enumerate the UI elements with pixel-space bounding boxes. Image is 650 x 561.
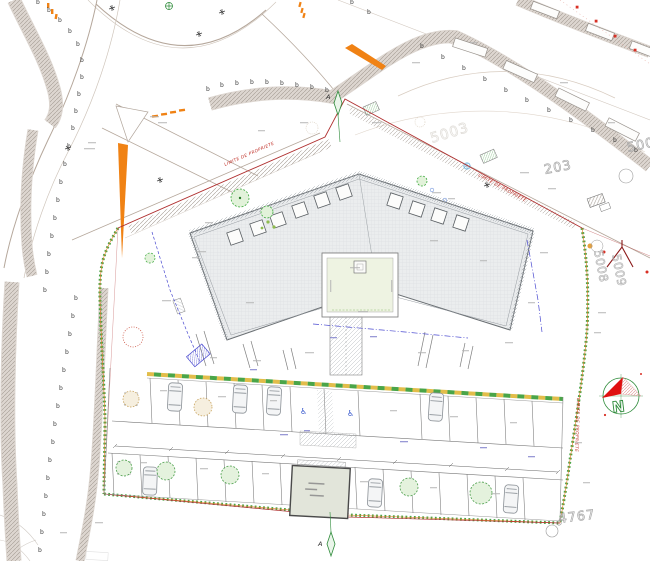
tree [194,398,212,416]
parcel-number-5009: 5009 [609,253,629,288]
parcel-number-203: 203 [543,158,573,178]
parcel-number-5008: 5008 [591,249,611,284]
tree [123,391,139,407]
utility-building [290,460,351,519]
tree [261,206,273,218]
tree [470,482,492,504]
tree [417,176,427,186]
roundabout-marker [165,2,173,10]
tree [221,466,239,484]
parcel-numbers: 203 5003 5003 5008 5009 4767 [428,120,650,527]
car [232,385,247,414]
crosswalk [300,431,356,448]
site-plan-drawing: b [0,0,650,561]
section-marker-bottom [327,532,335,556]
wheelchair-icon: ♿ [300,407,307,416]
section-label: A [317,540,322,548]
north-letter: N [611,397,626,416]
property-line-label: LIMITE DE PROPRIETE [573,398,581,452]
tree [157,462,175,480]
access-ramp [186,344,210,367]
property-line-label: LIMITE DE PROPRIETE [477,172,527,203]
tree [123,327,143,347]
courtyard [322,253,398,317]
car [167,383,182,412]
section-label: A [325,93,330,101]
parcel-number-4767: 4767 [558,508,597,527]
tree [116,460,132,476]
car [428,393,444,422]
parcel-number-5003-faint: 5003 [428,120,471,147]
orange-wedge [118,143,128,258]
tree [400,478,418,496]
building-complex [145,174,542,375]
wheelchair-icon: ♿ [347,409,354,418]
north-arrow-hatched [621,377,641,396]
site-plan-canvas: b [0,0,650,561]
wall-segments [453,1,650,141]
car [367,479,382,508]
accessible-aisle-hatch [317,390,334,434]
survey-circle [619,169,633,183]
hedge-right [560,228,588,523]
car [143,467,158,495]
parking-area: ♿ ♿ [104,368,563,521]
north-arrow: N [599,373,643,418]
car [503,485,519,514]
tree [145,253,155,263]
road-island [116,106,148,142]
